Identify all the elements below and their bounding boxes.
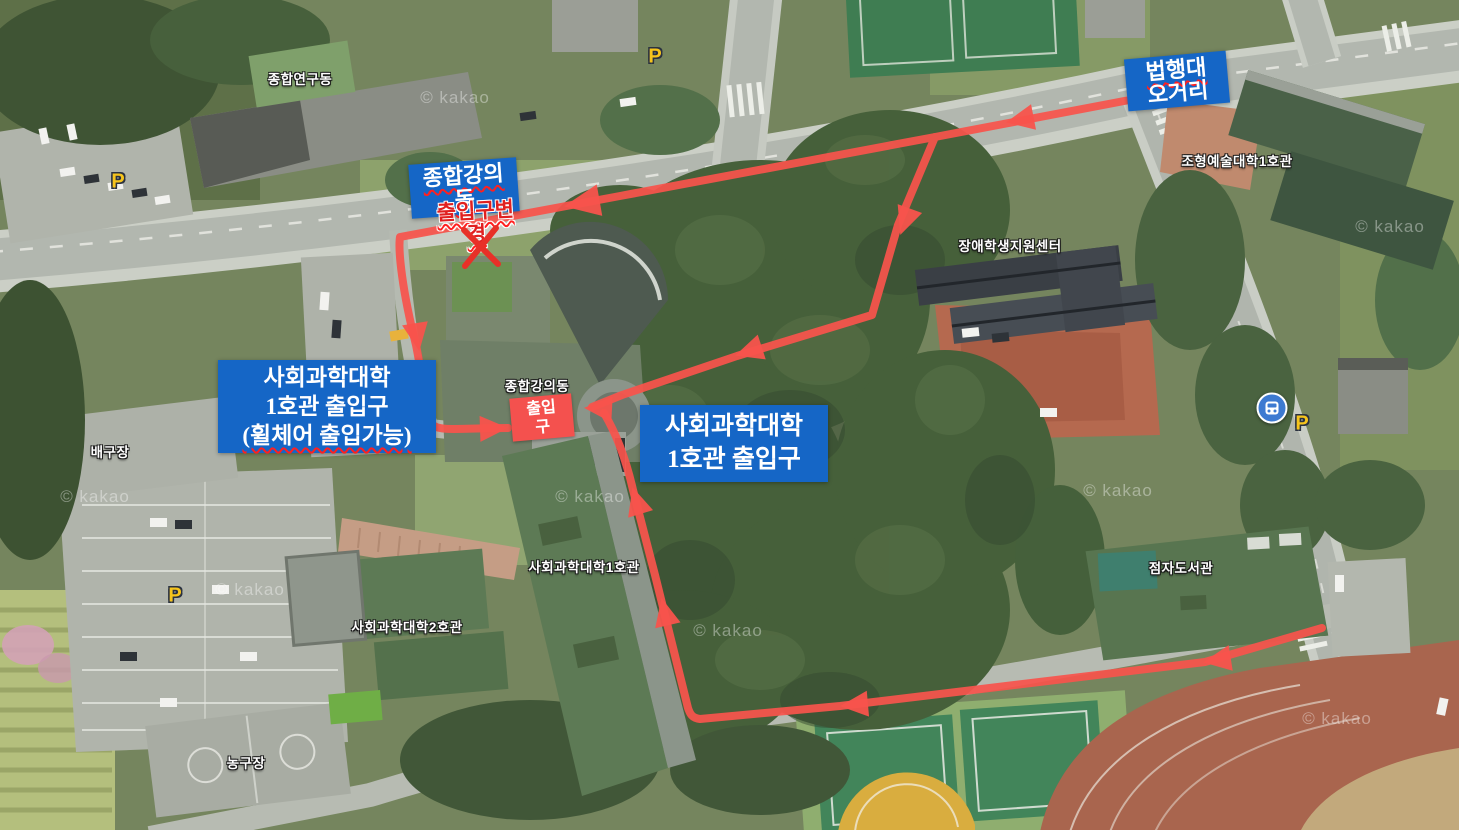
parking-icon: P — [1295, 413, 1308, 436]
map-label-disability-center: 장애학생지원센터 — [958, 235, 1061, 255]
label-line: 사회과학대학 — [226, 363, 428, 392]
map-label-social-sci-1: 사회과학대학1호관 — [528, 556, 639, 576]
label-line: 구 — [511, 415, 574, 439]
parking-icon: P — [648, 46, 661, 69]
map-label-lecture-hall: 종합강의동 — [505, 375, 570, 395]
label-line: 사회과학대학 — [648, 410, 820, 443]
map-label-volleyball-court: 배구장 — [91, 441, 130, 461]
label-entrance-main: 사회과학대학 1호관 출입구 — [640, 405, 828, 482]
label-entrance-wheelchair: 사회과학대학 1호관 출입구 (휠체어 출입가능) — [218, 360, 436, 453]
entrance-marker-box: 출입 구 — [509, 393, 575, 441]
x-mark-icon — [458, 224, 504, 275]
label-beophaengdae-ogeori: 법행대 오거리 — [1124, 51, 1230, 112]
label-line: 오거리 — [1134, 77, 1222, 107]
parking-icon: P — [111, 171, 124, 194]
map-label-social-sci-2: 사회과학대학2호관 — [351, 616, 462, 636]
label-line: 1호관 출입구 — [648, 443, 820, 476]
map-label-braille-library: 점자도서관 — [1149, 557, 1214, 577]
bus-stop-icon — [1257, 393, 1288, 424]
parking-icon: P — [168, 585, 181, 608]
label-line: 1호관 출입구 — [226, 392, 428, 421]
map-label-basketball-court: 농구장 — [227, 752, 266, 772]
label-line: (휠체어 출입가능) — [226, 421, 428, 450]
map-label-research-bldg: 종합연구동 — [268, 68, 333, 88]
map-canvas[interactable]: © kakao © kakao © kakao © kakao © kakao … — [0, 0, 1459, 830]
map-label-fine-arts-bldg: 조형예술대학1호관 — [1181, 150, 1292, 170]
